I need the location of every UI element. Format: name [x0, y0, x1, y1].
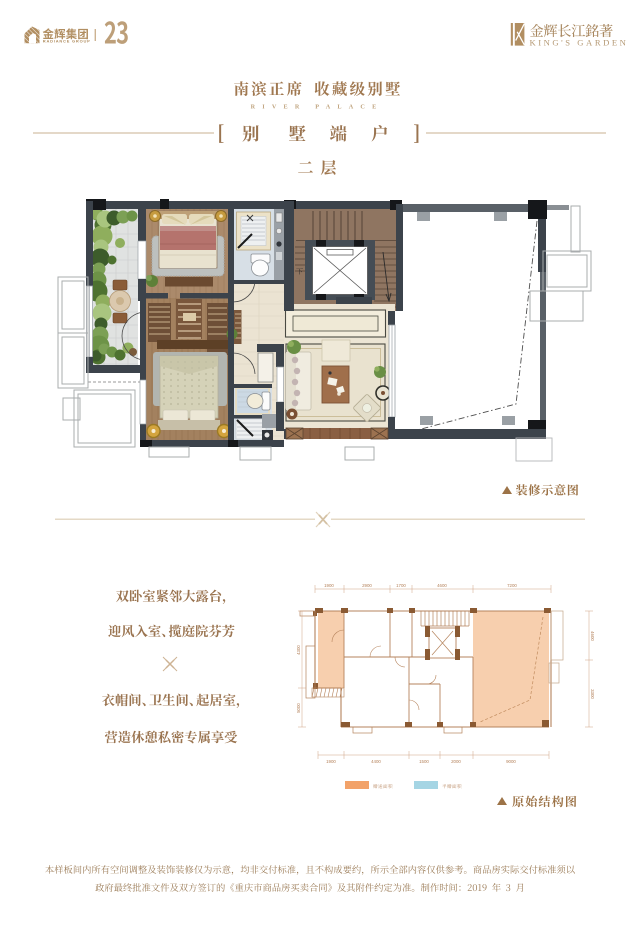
svg-text:2000: 2000	[451, 759, 461, 764]
svg-text:4600: 4600	[437, 583, 447, 588]
svg-text:1900: 1900	[326, 759, 336, 764]
svg-text:4600: 4600	[590, 631, 595, 641]
svg-text:1700: 1700	[396, 583, 406, 588]
svg-text:KING'S GARDEN: KING'S GARDEN	[530, 37, 629, 47]
svg-text:1500: 1500	[419, 759, 429, 764]
svg-text:2900: 2900	[362, 583, 372, 588]
svg-text:RIVER PALACE: RIVER PALACE	[251, 104, 384, 111]
svg-text:1900: 1900	[324, 583, 334, 588]
svg-text:9000: 9000	[506, 759, 516, 764]
svg-text:RADIANCE GROUP: RADIANCE GROUP	[43, 39, 91, 44]
svg-text:7200: 7200	[507, 583, 517, 588]
svg-text:4400: 4400	[371, 759, 381, 764]
svg-text:3300: 3300	[590, 689, 595, 699]
svg-text:4300: 4300	[296, 645, 301, 655]
svg-text:5000: 5000	[296, 703, 301, 713]
